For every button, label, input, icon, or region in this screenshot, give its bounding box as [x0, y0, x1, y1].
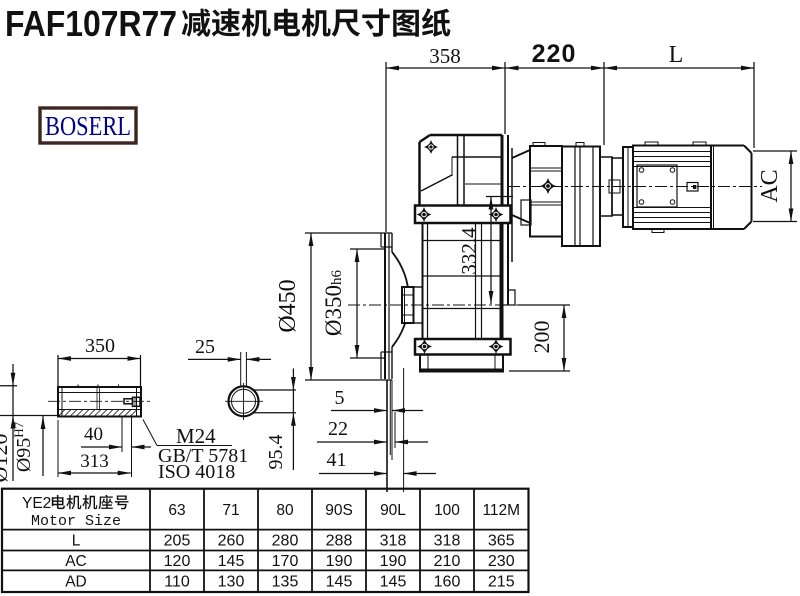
svg-text:350: 350 — [85, 335, 115, 357]
svg-text:AC: AC — [757, 169, 783, 202]
svg-text:Ø120: Ø120 — [0, 434, 12, 483]
svg-text:190: 190 — [326, 553, 353, 570]
svg-text:YE2: YE2 — [22, 495, 51, 512]
svg-text:25: 25 — [195, 336, 215, 358]
svg-text:AD: AD — [65, 574, 87, 591]
svg-text:365: 365 — [488, 533, 515, 550]
svg-text:318: 318 — [434, 533, 461, 550]
svg-text:200: 200 — [529, 321, 554, 354]
svg-text:205: 205 — [164, 533, 191, 550]
svg-text:63: 63 — [168, 502, 185, 519]
svg-text:260: 260 — [218, 533, 245, 550]
svg-text:40: 40 — [84, 424, 103, 445]
svg-text:130: 130 — [218, 574, 245, 591]
svg-text:358: 358 — [429, 44, 461, 68]
svg-text:110: 110 — [164, 574, 190, 591]
svg-text:220: 220 — [532, 40, 577, 68]
svg-text:135: 135 — [272, 574, 299, 591]
svg-text:90S: 90S — [325, 502, 353, 519]
svg-text:AC: AC — [65, 553, 87, 570]
svg-text:L: L — [669, 42, 684, 68]
svg-text:Ø450: Ø450 — [275, 279, 301, 332]
svg-text:145: 145 — [326, 574, 353, 591]
svg-text:95.4: 95.4 — [265, 435, 287, 470]
svg-text:Motor Size: Motor Size — [31, 513, 121, 530]
svg-text:22: 22 — [328, 418, 348, 440]
svg-text:190: 190 — [380, 553, 407, 570]
svg-text:230: 230 — [488, 553, 515, 570]
svg-text:280: 280 — [272, 533, 299, 550]
svg-text:215: 215 — [488, 574, 515, 591]
svg-text:L: L — [72, 533, 81, 550]
svg-text:120: 120 — [164, 553, 191, 570]
svg-text:100: 100 — [434, 502, 460, 519]
svg-text:145: 145 — [218, 553, 245, 570]
svg-text:ISO 4018: ISO 4018 — [158, 461, 235, 483]
svg-text:318: 318 — [380, 533, 407, 550]
svg-text:FAF107R77: FAF107R77 — [5, 3, 177, 44]
svg-text:170: 170 — [272, 553, 299, 570]
svg-text:112M: 112M — [482, 502, 520, 519]
svg-text:90L: 90L — [380, 502, 406, 519]
svg-text:41: 41 — [327, 449, 347, 471]
svg-text:145: 145 — [380, 574, 407, 591]
svg-text:160: 160 — [434, 574, 461, 591]
svg-text:BOSERL: BOSERL — [45, 111, 131, 141]
svg-text:5: 5 — [335, 387, 345, 409]
svg-text:288: 288 — [326, 533, 353, 550]
svg-text:313: 313 — [80, 451, 109, 472]
svg-text:332.4: 332.4 — [457, 227, 481, 275]
svg-text:210: 210 — [434, 553, 461, 570]
svg-text:71: 71 — [222, 502, 239, 519]
svg-text:80: 80 — [276, 502, 294, 519]
